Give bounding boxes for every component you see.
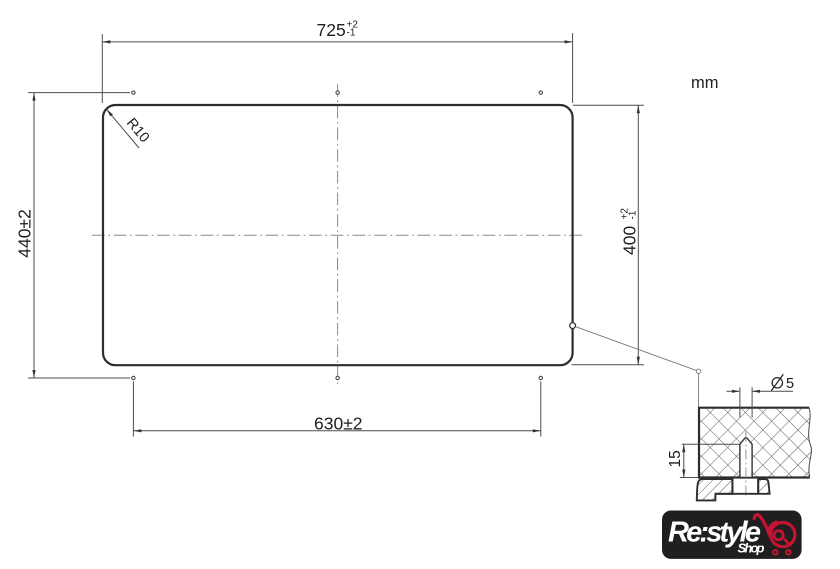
svg-text:725: 725 xyxy=(317,20,346,40)
svg-text:-1: -1 xyxy=(347,27,356,38)
svg-text:400: 400 xyxy=(620,226,640,255)
svg-text:440±2: 440±2 xyxy=(15,209,35,258)
svg-text:15: 15 xyxy=(667,450,684,467)
svg-text:5: 5 xyxy=(786,376,794,392)
svg-text:Shop: Shop xyxy=(738,540,765,555)
svg-text:630±2: 630±2 xyxy=(314,413,363,433)
svg-text:mm: mm xyxy=(691,74,719,92)
svg-text:-1: -1 xyxy=(628,210,639,219)
